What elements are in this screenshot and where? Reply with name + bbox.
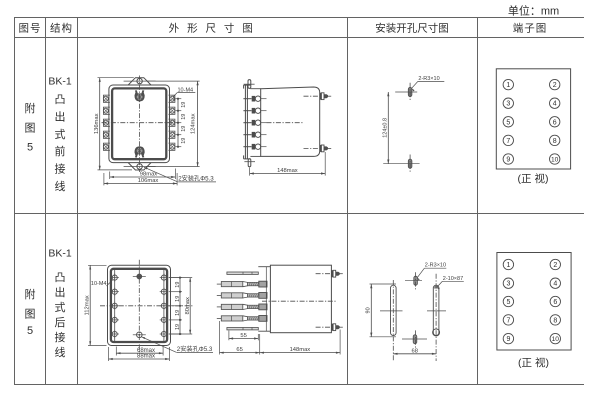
svg-text:接: 接 [55,163,66,176]
svg-text:6: 6 [553,299,557,306]
svg-text:附: 附 [25,287,36,301]
svg-text:4: 4 [553,281,557,288]
svg-text:80max: 80max [185,297,191,315]
svg-text:8: 8 [553,317,557,324]
svg-text:4: 4 [553,101,557,108]
svg-text:68: 68 [411,348,417,354]
svg-text:单位：mm: 单位：mm [508,4,559,18]
svg-text:安装开孔尺寸图: 安装开孔尺寸图 [375,21,449,34]
svg-text:(正 视): (正 视) [518,356,549,369]
svg-text:凸: 凸 [55,94,66,106]
svg-text:19: 19 [181,126,187,132]
svg-text:124±0.8: 124±0.8 [383,118,389,138]
svg-text:9: 9 [506,336,510,343]
svg-text:2: 2 [553,262,557,269]
svg-text:2安装孔Φ5.3: 2安装孔Φ5.3 [177,345,213,353]
svg-text:(正 视): (正 视) [518,172,549,185]
svg-text:5: 5 [506,299,510,306]
svg-text:19: 19 [181,138,187,144]
svg-text:BK-1: BK-1 [48,76,72,88]
svg-text:结构: 结构 [50,21,73,34]
svg-text:5: 5 [27,325,33,337]
svg-text:90: 90 [366,307,372,313]
svg-text:7: 7 [506,317,510,324]
svg-text:线: 线 [55,345,66,359]
svg-text:外 形 尺 寸 图: 外 形 尺 寸 图 [169,21,256,34]
svg-text:图号: 图号 [19,22,42,34]
svg-text:65: 65 [236,347,242,353]
svg-text:凸: 凸 [55,272,66,284]
svg-text:148max: 148max [277,168,298,174]
svg-text:124max: 124max [191,113,197,134]
svg-text:图: 图 [25,308,36,321]
svg-text:端子图: 端子图 [513,21,548,34]
svg-text:式: 式 [55,128,66,141]
svg-text:19: 19 [175,296,181,302]
svg-text:接: 接 [55,331,66,344]
svg-text:55: 55 [240,333,246,339]
svg-text:线: 线 [55,179,66,193]
svg-text:6: 6 [553,119,557,126]
svg-text:5: 5 [506,119,510,126]
svg-text:出: 出 [55,109,66,123]
svg-text:1: 1 [506,82,510,89]
svg-text:136max: 136max [94,113,100,134]
svg-text:3: 3 [506,281,510,288]
svg-text:5: 5 [27,142,33,154]
svg-text:图: 图 [25,122,36,135]
svg-text:10: 10 [551,157,559,164]
svg-text:2安装孔Φ5.3: 2安装孔Φ5.3 [178,175,214,183]
svg-text:10-M4: 10-M4 [91,281,107,287]
svg-text:附: 附 [25,101,36,115]
svg-text:后: 后 [55,316,66,329]
svg-text:2: 2 [553,82,557,89]
svg-text:88max: 88max [137,354,155,360]
svg-text:98max: 98max [140,172,158,178]
svg-text:19: 19 [175,310,181,316]
svg-text:2-10×87: 2-10×87 [443,276,463,282]
svg-text:10: 10 [552,336,560,343]
svg-text:148max: 148max [290,347,311,353]
svg-text:1: 1 [506,262,510,269]
svg-text:BK-1: BK-1 [48,248,72,260]
svg-text:19: 19 [175,324,181,330]
svg-text:19: 19 [181,114,187,120]
svg-text:出: 出 [55,285,66,299]
svg-text:106max: 106max [138,178,159,184]
svg-text:前: 前 [55,144,66,158]
svg-text:2-R3×10: 2-R3×10 [425,263,446,269]
svg-text:112max: 112max [84,295,90,315]
svg-text:7: 7 [506,138,510,145]
svg-text:式: 式 [55,301,66,314]
svg-text:2-R3×10: 2-R3×10 [418,76,439,82]
svg-text:19: 19 [175,282,181,288]
svg-text:19: 19 [181,102,187,108]
svg-text:8: 8 [553,138,557,145]
svg-text:3: 3 [506,101,510,108]
svg-text:9: 9 [506,157,510,164]
